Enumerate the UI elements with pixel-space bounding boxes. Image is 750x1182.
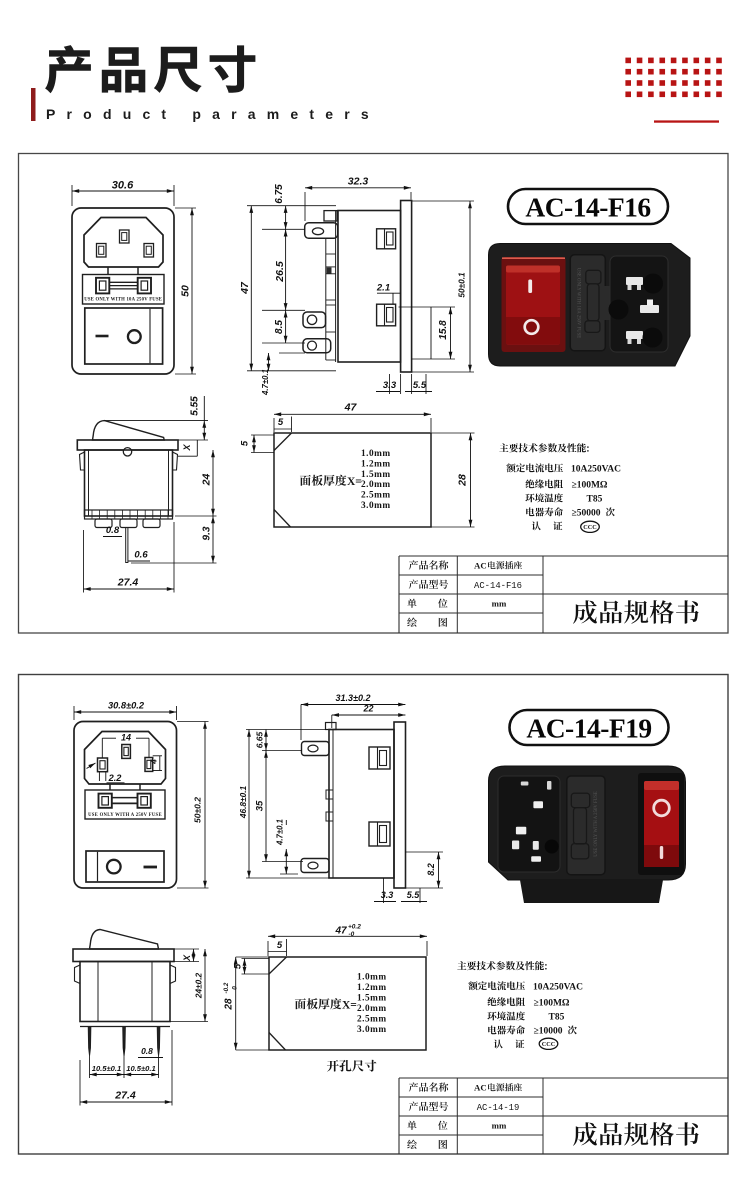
svg-text:8.5: 8.5: [274, 320, 285, 334]
svg-text:5: 5: [278, 417, 284, 428]
svg-text:AC-14-F16: AC-14-F16: [474, 581, 522, 591]
svg-text:3.3: 3.3: [381, 890, 394, 900]
svg-text:≥100MΩ: ≥100MΩ: [572, 481, 608, 491]
svg-text:47: 47: [344, 402, 358, 414]
svg-text:30.8±0.2: 30.8±0.2: [108, 701, 145, 711]
svg-text:50±0.2: 50±0.2: [193, 797, 203, 823]
svg-text:Product parameters: Product parameters: [46, 106, 380, 122]
svg-text:24: 24: [201, 474, 213, 487]
svg-text:AC-14-19: AC-14-19: [477, 1103, 520, 1113]
svg-text:≥10000: ≥10000: [534, 1027, 563, 1037]
svg-text:4.7±0.1: 4.7±0.1: [261, 369, 270, 396]
svg-text:USE ONLY WITH A 250V FUSE: USE ONLY WITH A 250V FUSE: [88, 813, 162, 818]
svg-text:5: 5: [240, 440, 251, 446]
svg-text:AC: AC: [474, 1083, 487, 1093]
svg-text:1.5mm: 1.5mm: [357, 994, 387, 1004]
svg-text:mm: mm: [492, 1121, 507, 1131]
svg-text:-0.2: -0.2: [223, 982, 230, 993]
svg-text:AC-14-F19: AC-14-F19: [526, 713, 651, 744]
svg-text:1.2mm: 1.2mm: [357, 983, 387, 993]
svg-text:≥100MΩ: ≥100MΩ: [534, 998, 570, 1008]
svg-text:50±0.1: 50±0.1: [457, 272, 467, 298]
svg-text:≥50000: ≥50000: [572, 509, 601, 519]
svg-text:46.8±0.1: 46.8±0.1: [238, 786, 248, 820]
svg-text:3.0mm: 3.0mm: [357, 1025, 387, 1035]
svg-text:28: 28: [224, 998, 235, 1011]
svg-text:-0: -0: [349, 931, 355, 938]
svg-text:CCC: CCC: [583, 524, 596, 531]
svg-text:4.7±0.1: 4.7±0.1: [276, 819, 285, 846]
svg-text:2.5mm: 2.5mm: [357, 1015, 387, 1025]
svg-text:T85: T85: [587, 495, 603, 505]
svg-text:USE ONLY WITH A 250V FUSE: USE ONLY WITH A 250V FUSE: [594, 791, 599, 856]
svg-text:14: 14: [121, 733, 131, 743]
svg-text:35: 35: [255, 800, 266, 811]
svg-text:27.4: 27.4: [114, 1090, 136, 1102]
svg-text:T85: T85: [549, 1013, 565, 1023]
svg-text:1.0mm: 1.0mm: [361, 449, 391, 459]
svg-text:AC-14-F16: AC-14-F16: [525, 192, 650, 223]
svg-text:X=: X=: [347, 476, 362, 488]
svg-text:2.1: 2.1: [376, 283, 390, 294]
svg-text:3.0mm: 3.0mm: [361, 501, 391, 511]
svg-text:AC: AC: [474, 561, 487, 571]
svg-text:2.2: 2.2: [108, 773, 123, 783]
svg-text:28: 28: [457, 474, 469, 487]
svg-text:6.65: 6.65: [255, 731, 265, 748]
svg-text:X: X: [182, 444, 192, 452]
svg-text:10A250VAC: 10A250VAC: [533, 982, 583, 992]
svg-text:2.0mm: 2.0mm: [357, 1004, 387, 1014]
svg-text:CCC: CCC: [542, 1041, 555, 1048]
svg-text:1.5mm: 1.5mm: [361, 470, 391, 480]
svg-text:5.5: 5.5: [407, 890, 421, 900]
svg-text:X: X: [182, 954, 192, 962]
svg-text:47: 47: [239, 281, 251, 295]
svg-text:32.3: 32.3: [348, 176, 369, 188]
svg-text:1.0mm: 1.0mm: [357, 973, 387, 983]
svg-text:10.5±0.1: 10.5±0.1: [126, 1064, 156, 1073]
svg-text:31.3±0.2: 31.3±0.2: [336, 693, 371, 703]
svg-text:27.4: 27.4: [117, 577, 139, 589]
svg-text:2.0mm: 2.0mm: [361, 480, 391, 490]
svg-text:22: 22: [362, 704, 373, 714]
svg-text:8.2: 8.2: [426, 863, 436, 876]
svg-text:24±0.2: 24±0.2: [194, 972, 204, 999]
svg-text:15.8: 15.8: [438, 320, 449, 340]
svg-text:0: 0: [232, 986, 239, 990]
svg-text:5: 5: [277, 940, 283, 951]
svg-text:4: 4: [148, 759, 158, 765]
svg-text:26.5: 26.5: [274, 261, 286, 283]
svg-text:50: 50: [180, 285, 192, 297]
svg-text:2.5mm: 2.5mm: [361, 491, 391, 501]
svg-text:+0.2: +0.2: [348, 924, 361, 931]
svg-text:10.5±0.1: 10.5±0.1: [92, 1064, 122, 1073]
svg-text:USE ONLY WITH 10A 250V FUSE: USE ONLY WITH 10A 250V FUSE: [84, 298, 162, 303]
svg-text:1.2mm: 1.2mm: [361, 459, 391, 469]
svg-text:mm: mm: [492, 599, 507, 609]
svg-text:6.75: 6.75: [274, 184, 285, 204]
svg-text:9.3: 9.3: [202, 526, 213, 540]
svg-text:30.6: 30.6: [112, 179, 134, 191]
svg-text:0.8: 0.8: [141, 1046, 153, 1056]
svg-text:3.3: 3.3: [383, 380, 397, 391]
svg-text:5.5: 5.5: [413, 380, 427, 391]
svg-text:0.6: 0.6: [134, 550, 148, 561]
svg-text:10A250VAC: 10A250VAC: [571, 465, 621, 475]
svg-text:X=: X=: [342, 999, 357, 1011]
svg-text:5.55: 5.55: [190, 396, 201, 416]
svg-text:47: 47: [334, 926, 347, 937]
svg-text:0.8: 0.8: [106, 525, 120, 536]
svg-text:USE ONLY WITH 10A 250V FUSE: USE ONLY WITH 10A 250V FUSE: [576, 268, 581, 339]
